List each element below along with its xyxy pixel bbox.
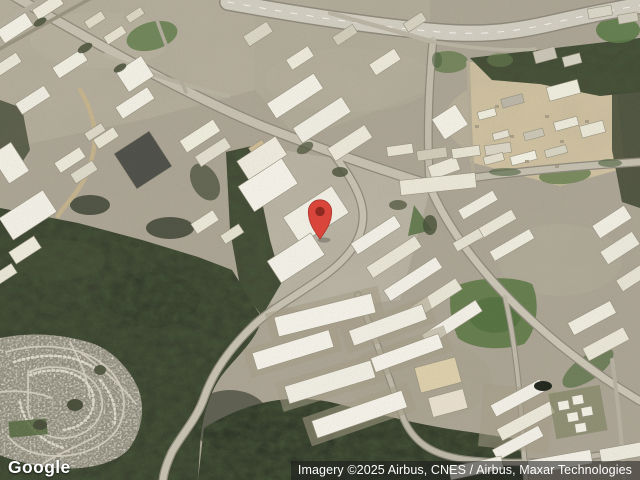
- pin-dot: [315, 207, 324, 216]
- satellite-map-canvas[interactable]: Google Imagery ©2025 Airbus, CNES / Airb…: [0, 0, 640, 480]
- google-logo[interactable]: Google: [8, 457, 71, 478]
- satellite-imagery: [0, 0, 640, 480]
- map-attribution: Imagery ©2025 Airbus, CNES / Airbus, Max…: [291, 461, 640, 480]
